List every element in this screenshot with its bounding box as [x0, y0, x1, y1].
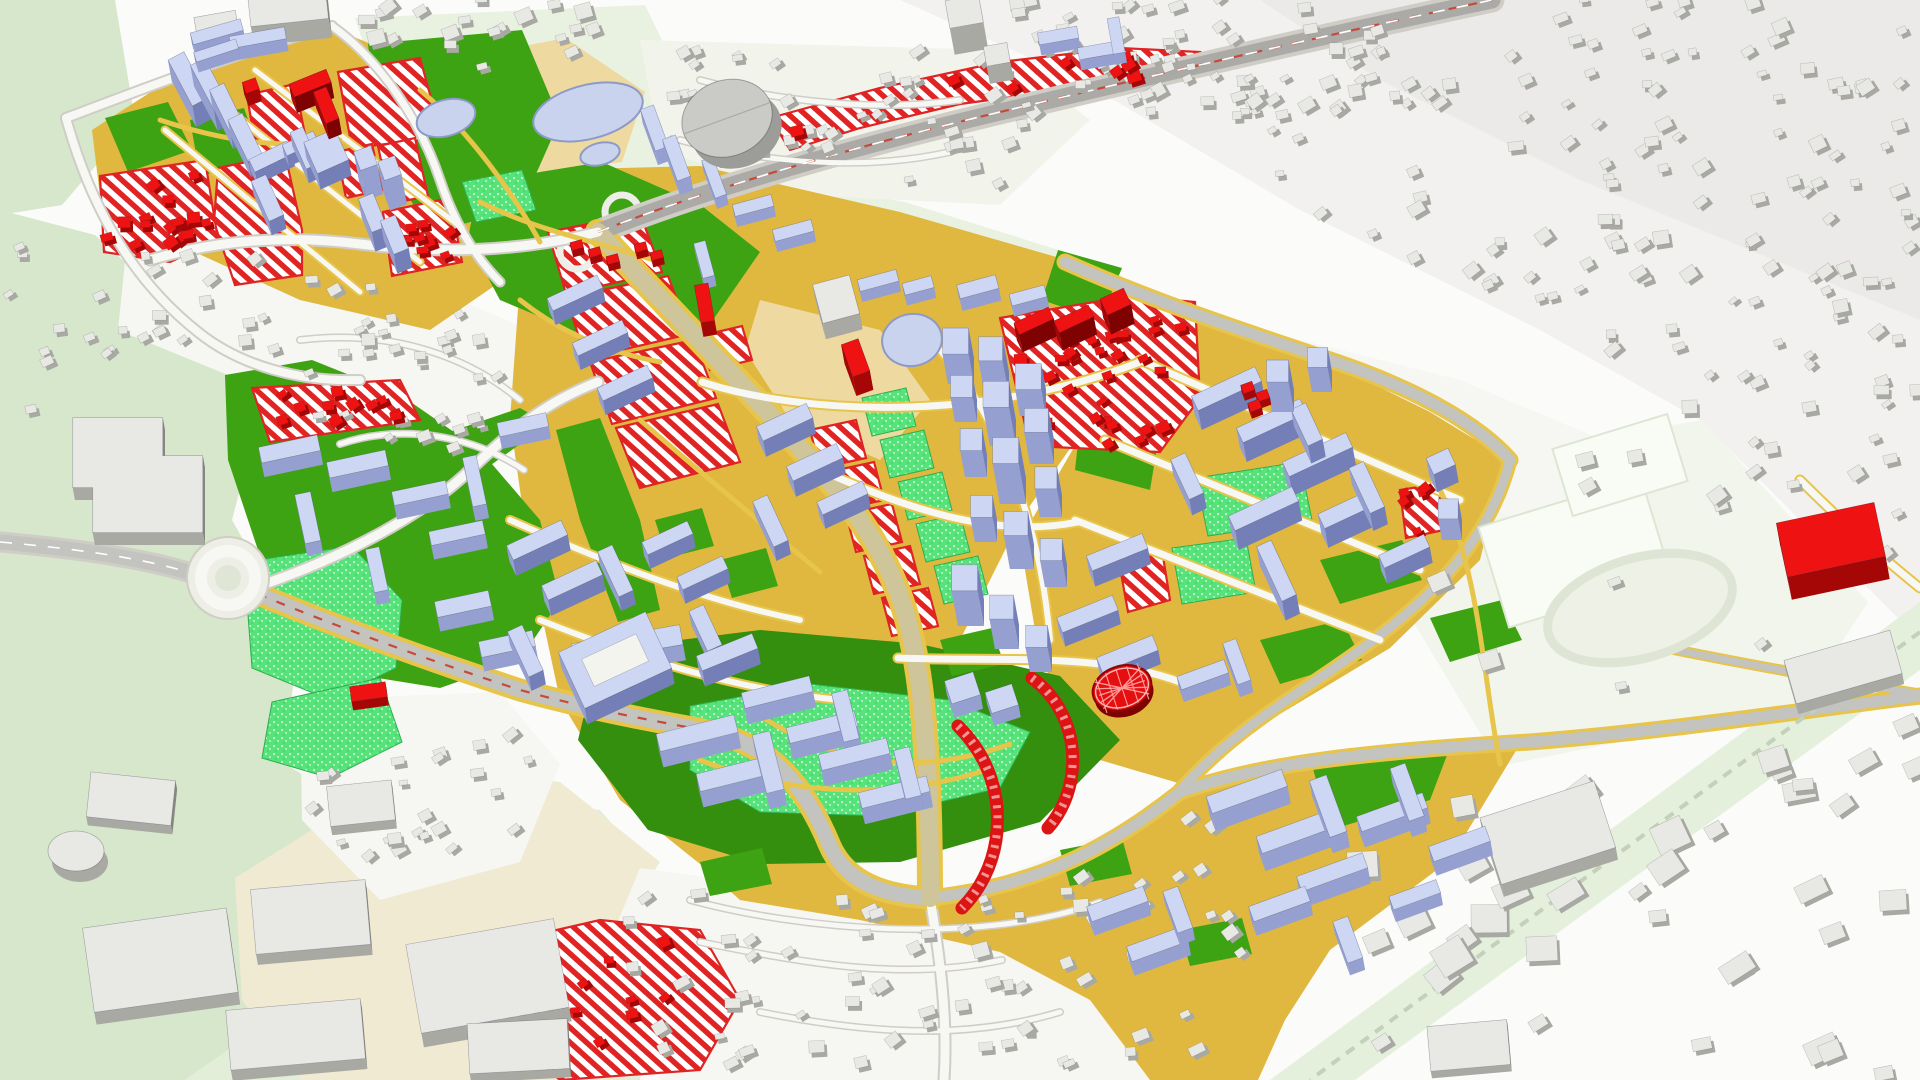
planned-lavender-building — [951, 375, 977, 422]
gray-building — [326, 780, 396, 835]
city-plan-3d-map[interactable] — [0, 0, 1920, 1080]
planned-lavender-building — [1024, 408, 1054, 464]
planned-lavender-building — [952, 565, 984, 626]
gray-building — [467, 1019, 571, 1080]
gray-building — [250, 880, 372, 965]
map-viewport — [0, 0, 1920, 1080]
roundabout — [187, 537, 269, 619]
proposed-red-building — [350, 682, 389, 711]
gray-building — [1427, 1020, 1512, 1079]
gray-building — [86, 772, 177, 834]
planned-lavender-building — [1308, 347, 1332, 392]
planned-lavender-building — [971, 495, 997, 542]
planned-lavender-building — [960, 429, 987, 477]
gray-building — [83, 908, 241, 1025]
planned-lavender-building — [1035, 467, 1062, 517]
gray-building — [226, 999, 368, 1080]
planned-lavender-building — [990, 595, 1019, 649]
planned-lavender-building — [1040, 539, 1067, 587]
planned-lavender-building — [1438, 499, 1462, 540]
planned-lavender-building — [1026, 625, 1052, 672]
